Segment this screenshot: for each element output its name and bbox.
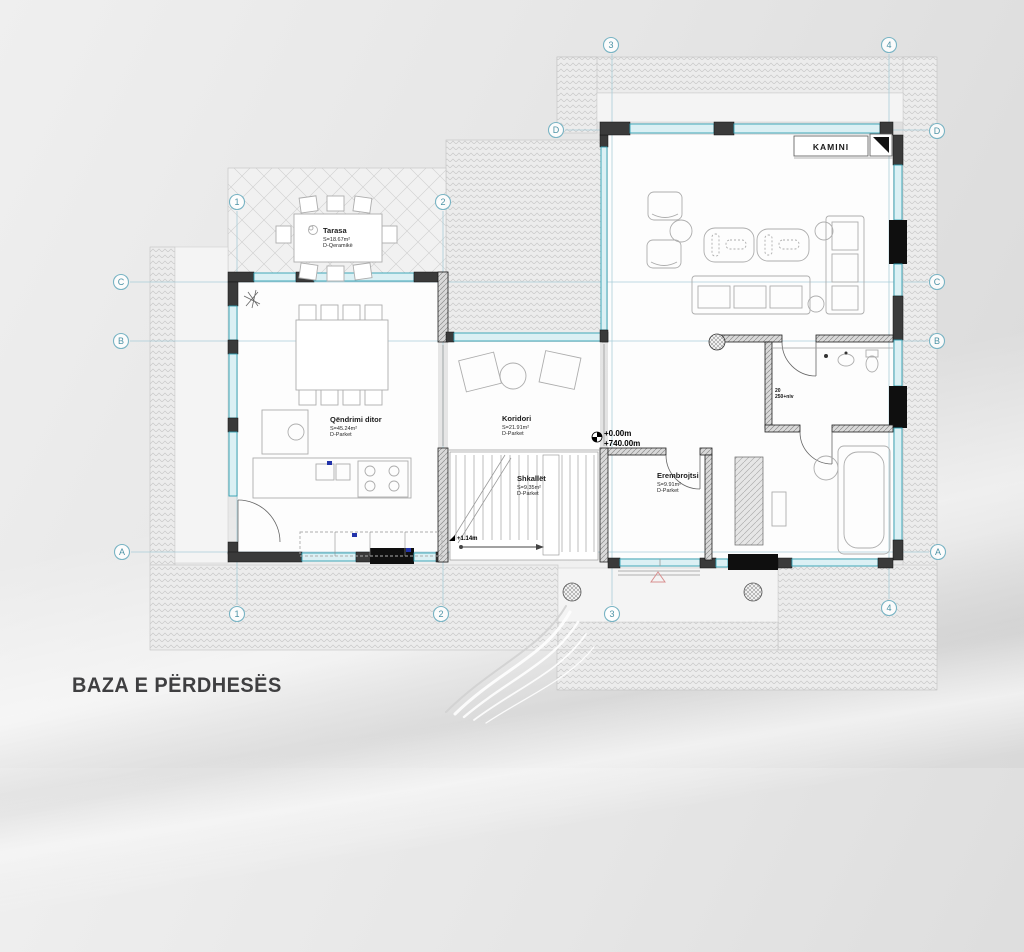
axis-bubble-B-left: B [118, 336, 124, 346]
axis-bubble-C-left: C [118, 277, 125, 287]
axis-bubble-3-bottom: 3 [609, 609, 614, 619]
fireplace: KAMINI [794, 134, 893, 158]
floor-plan: KAMINI 1 2 3 4 1 2 3 4 D C [0, 0, 1024, 768]
porch-column [744, 583, 762, 601]
svg-text:Erembrojtsi: Erembrojtsi [657, 471, 699, 480]
axis-bubble-C-right: C [934, 277, 941, 287]
axis-bubble-3-top: 3 [608, 40, 613, 50]
axis-bubble-A-right: A [935, 547, 941, 557]
axis-bubble-2-bottom: 2 [438, 609, 443, 619]
svg-text:Shkallët: Shkallët [517, 474, 546, 483]
axis-bubble-D-left: D [553, 125, 560, 135]
svg-text:Tarasa: Tarasa [323, 226, 347, 235]
axis-bubble-4-top: 4 [886, 40, 891, 50]
svg-text:Qëndrimi ditor: Qëndrimi ditor [330, 415, 382, 424]
svg-text:Koridori: Koridori [502, 414, 531, 423]
axis-bubble-B-right: B [934, 336, 940, 346]
side-yard-strip [175, 247, 228, 563]
porch-column [563, 583, 581, 601]
svg-text:+0.00m: +0.00m [604, 429, 631, 438]
svg-text:250+niv: 250+niv [775, 394, 794, 400]
svg-text:D-Parket: D-Parket [517, 491, 539, 497]
axis-bubble-4-bottom: 4 [886, 603, 891, 613]
fireplace-label: KAMINI [813, 142, 849, 152]
svg-text:+740.00m: +740.00m [604, 439, 640, 448]
axis-bubble-D-right: D [934, 126, 941, 136]
rear-balcony-strip [597, 93, 903, 122]
axis-bubble-A-left: A [119, 547, 125, 557]
round-column [709, 334, 725, 350]
page-title: BAZA E PËRDHESËS [72, 674, 282, 698]
svg-text:D-Qeramikë: D-Qeramikë [323, 243, 353, 249]
shaft-hatch [735, 457, 763, 545]
svg-text:+1.14m: +1.14m [457, 536, 478, 542]
axis-bubble-1-bottom: 1 [234, 609, 239, 619]
stairs [450, 452, 598, 560]
svg-text:D-Parket: D-Parket [657, 488, 679, 494]
axis-bubble-1-top: 1 [234, 197, 239, 207]
svg-text:D-Parket: D-Parket [330, 432, 352, 438]
svg-text:D-Parket: D-Parket [502, 431, 524, 437]
axis-bubble-2-top: 2 [440, 197, 445, 207]
